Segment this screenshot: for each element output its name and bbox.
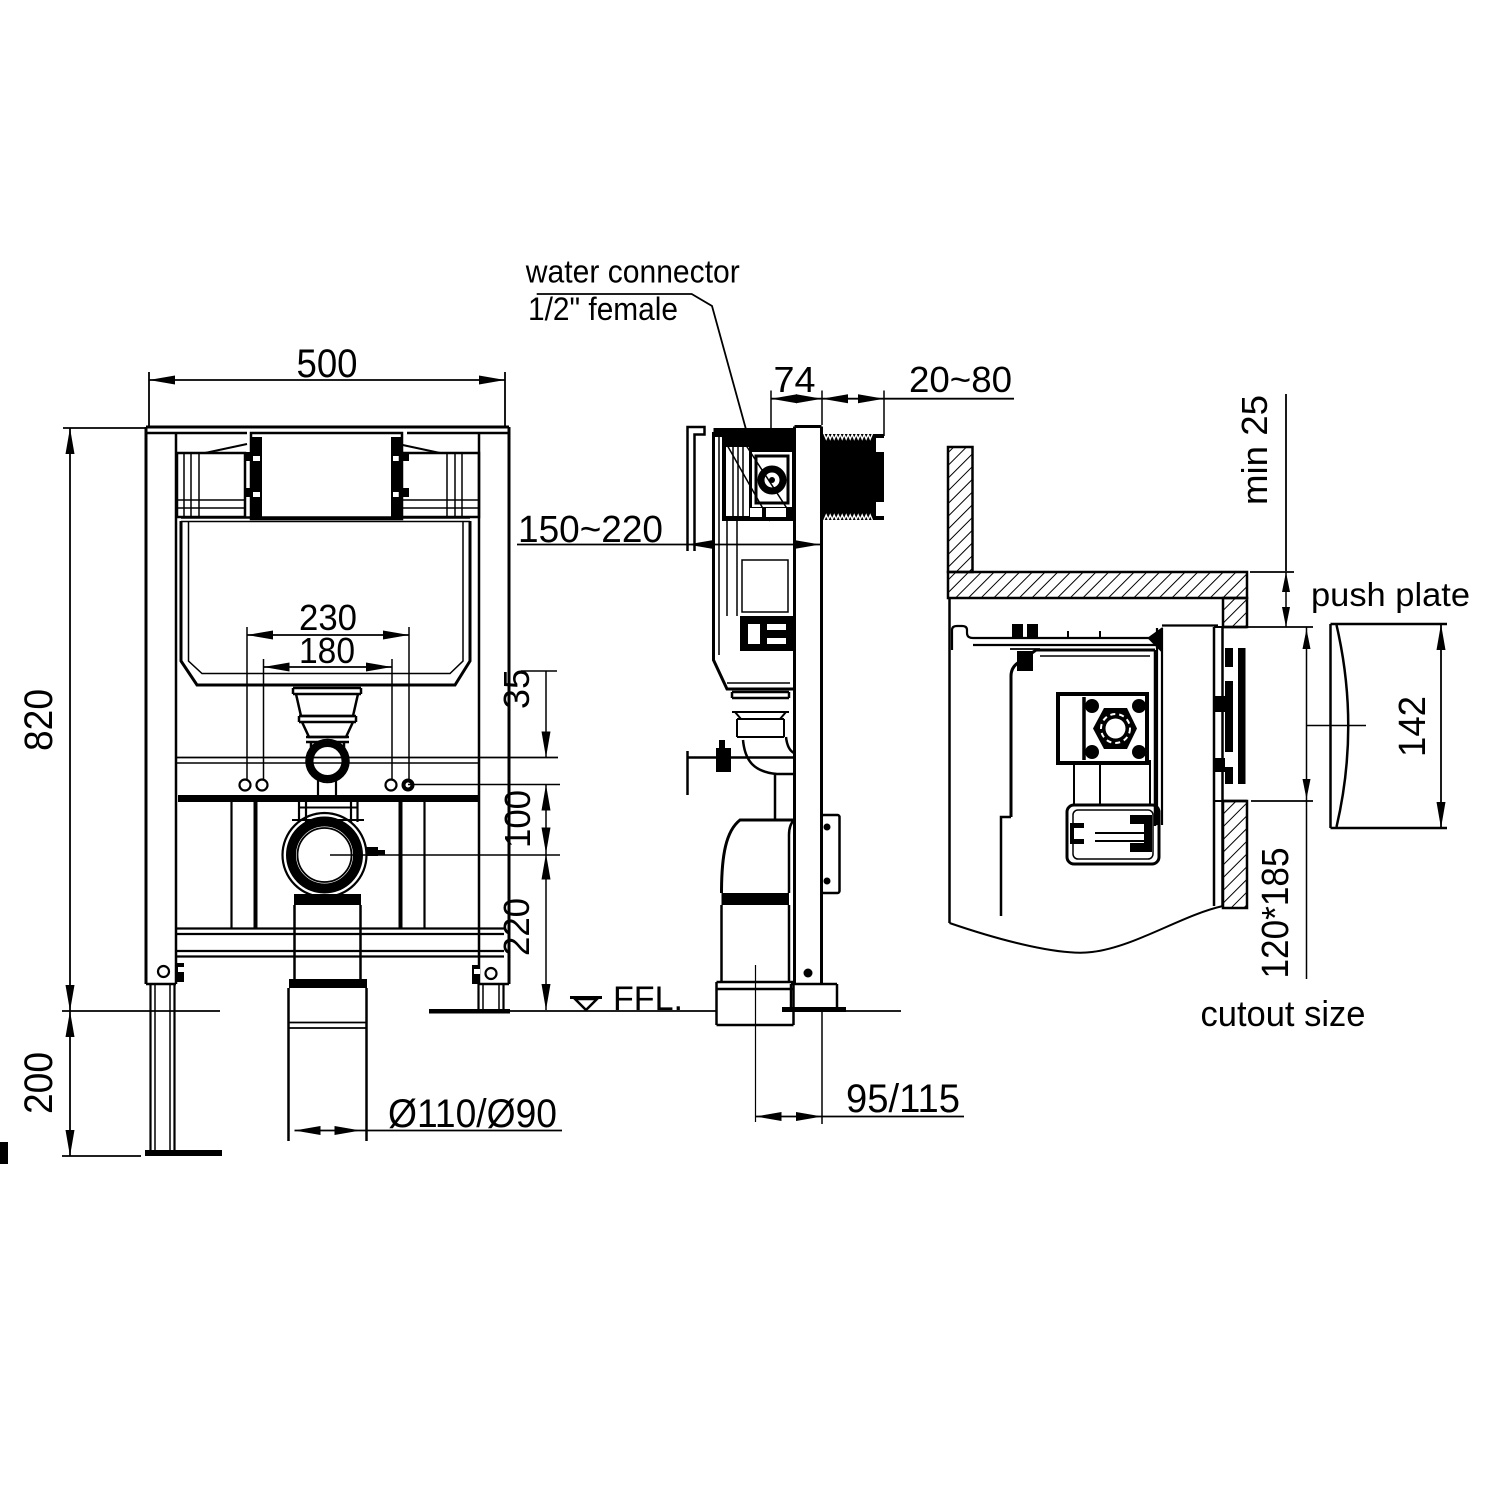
svg-text:200: 200 (17, 1052, 61, 1114)
svg-text:500: 500 (297, 342, 358, 386)
svg-text:20~80: 20~80 (909, 359, 1012, 400)
svg-text:74: 74 (774, 359, 816, 400)
svg-text:push plate: push plate (1311, 576, 1470, 613)
svg-text:220: 220 (496, 898, 537, 956)
svg-text:120*185: 120*185 (1255, 848, 1297, 979)
svg-text:142: 142 (1392, 696, 1434, 757)
svg-text:95/115: 95/115 (846, 1077, 960, 1121)
svg-text:35: 35 (496, 669, 537, 709)
svg-text:100: 100 (497, 790, 538, 848)
svg-text:FFL.: FFL. (613, 980, 683, 1018)
svg-text:min 25: min 25 (1234, 395, 1275, 505)
svg-text:1/2" female: 1/2" female (528, 291, 678, 327)
svg-text:cutout size: cutout size (1201, 993, 1366, 1034)
svg-text:820: 820 (17, 689, 61, 751)
svg-text:150~220: 150~220 (518, 509, 663, 551)
svg-text:180: 180 (299, 630, 355, 671)
svg-text:Ø110/Ø90: Ø110/Ø90 (388, 1092, 557, 1136)
svg-text:water connector: water connector (525, 254, 740, 290)
